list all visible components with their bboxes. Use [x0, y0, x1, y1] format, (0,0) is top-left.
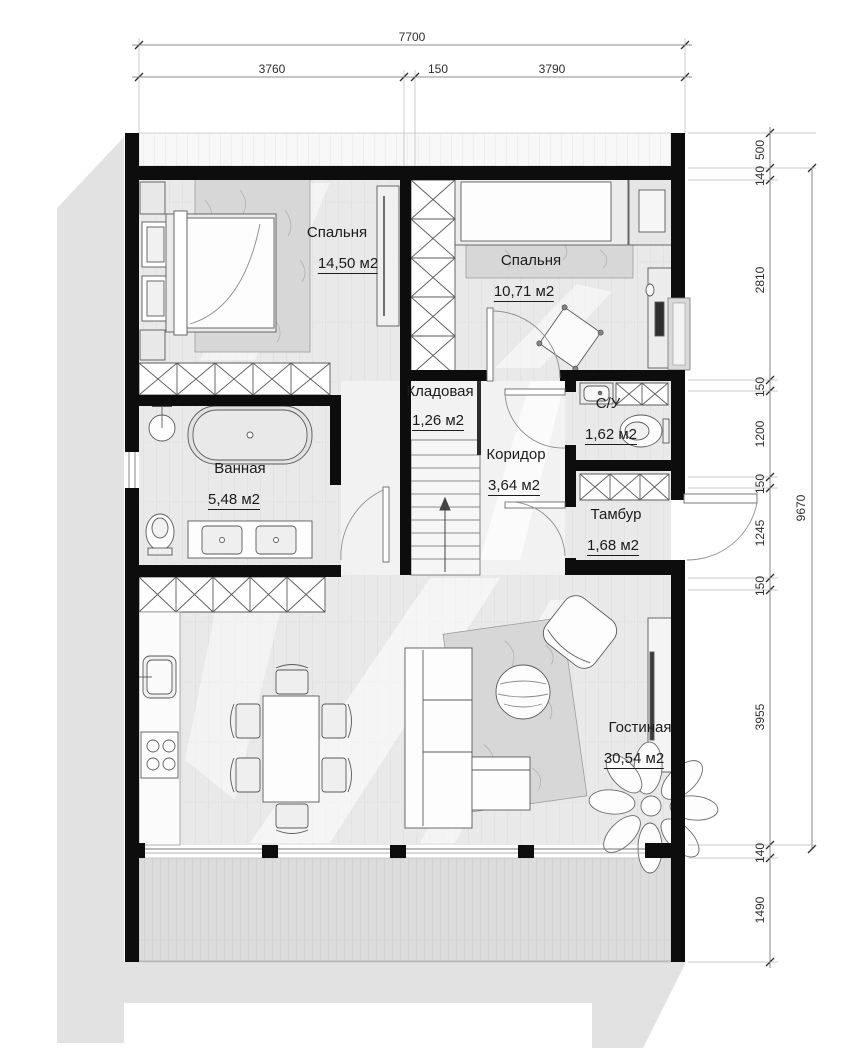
kitchen-counter: [139, 612, 180, 845]
dim-top-total: 7700: [399, 30, 426, 44]
dim-right-1: 140: [753, 166, 767, 186]
floor-plan-drawing: [0, 0, 858, 1052]
room-area-bedroom-2: 10,71 м2: [494, 283, 554, 302]
dim-top-2: 3790: [539, 62, 566, 76]
dim-right-8: 3955: [753, 704, 767, 731]
wardrobe-bedroom-2: [411, 180, 455, 375]
room-area-tambour: 1,68 м2: [587, 537, 639, 556]
wardrobe-wc: [616, 383, 668, 405]
bathtub-icon: [188, 406, 312, 464]
room-name-living: Гостиная: [609, 719, 672, 736]
stairs: [411, 440, 480, 575]
floor-plan-page: 7700 3760 150 3790 500 140 2810 150 1200…: [0, 0, 858, 1052]
roof-overhang-strip: [139, 133, 671, 166]
dim-top-0: 3760: [259, 62, 286, 76]
room-area-storage: 1,26 м2: [412, 412, 464, 431]
room-area-bedroom-1: 14,50 м2: [318, 255, 378, 274]
bed-single: [455, 178, 674, 245]
vanity-double-sink: [188, 521, 312, 558]
terrace-floor: [139, 858, 671, 962]
room-name-bedroom-1: Спальня: [307, 224, 367, 241]
room-name-tambour: Тамбур: [591, 506, 642, 523]
stove-icon: [141, 732, 178, 778]
wardrobe-bedroom-1: [139, 363, 330, 395]
room-name-bathroom: Ванная: [214, 460, 265, 477]
dim-top-1: 150: [428, 62, 448, 76]
room-area-bathroom: 5,48 м2: [208, 491, 260, 510]
wardrobe-tambour: [580, 474, 669, 500]
coffee-table: [496, 665, 550, 719]
window-bedroom-2: [668, 298, 690, 370]
dim-right-5: 150: [753, 474, 767, 494]
room-name-storage: Кладовая: [406, 383, 473, 400]
dim-right-4: 1200: [753, 421, 767, 448]
dim-right-7: 150: [753, 576, 767, 596]
dim-right-6: 1245: [753, 520, 767, 547]
room-area-corridor: 3,64 м2: [488, 477, 540, 496]
dim-right-3: 150: [753, 377, 767, 397]
room-area-wc: 1,62 м2: [585, 426, 637, 445]
dim-right-10: 1490: [753, 897, 767, 924]
toilet-bathroom-icon: [146, 514, 174, 555]
room-area-living: 30,54 м2: [604, 750, 664, 769]
room-name-corridor: Коридор: [486, 446, 545, 463]
mirror-cabinet: [377, 186, 399, 326]
dim-right-2: 2810: [753, 267, 767, 294]
wardrobe-kitchen-wall: [139, 577, 325, 612]
door-entrance: [684, 494, 757, 560]
room-name-wc: С/У: [596, 395, 621, 412]
dim-right-0: 500: [753, 140, 767, 160]
window-bathroom: [125, 452, 139, 488]
room-name-bedroom-2: Спальня: [501, 252, 561, 269]
dim-right-total: 9670: [794, 495, 808, 522]
dim-right-9: 140: [753, 843, 767, 863]
kitchen-sink-icon: [137, 656, 176, 698]
